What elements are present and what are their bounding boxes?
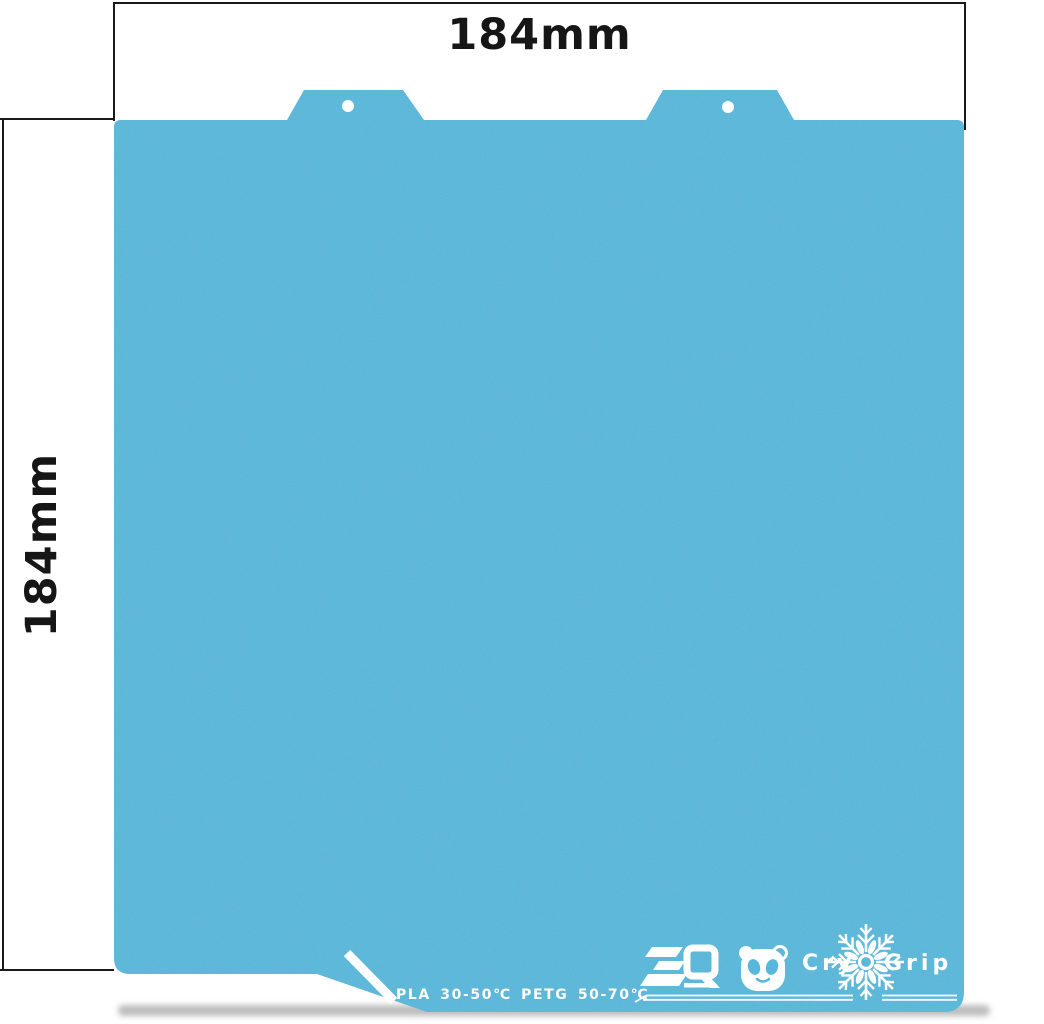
product-diagram bbox=[0, 0, 1044, 1024]
left-dimension-label: 184mm bbox=[17, 453, 67, 637]
mounting-hole-left bbox=[342, 100, 354, 112]
temperature-label: PLA 30-50℃ PETG 50-70℃ bbox=[396, 987, 649, 1003]
cryogrip-wordmark-left: Cry bbox=[802, 951, 855, 976]
mounting-hole-right bbox=[722, 101, 734, 113]
cryogrip-wordmark-right: Grip bbox=[884, 951, 952, 976]
plate-grain-texture bbox=[114, 90, 964, 1012]
build-plate bbox=[114, 90, 964, 1012]
top-dimension-label: 184mm bbox=[114, 10, 965, 60]
